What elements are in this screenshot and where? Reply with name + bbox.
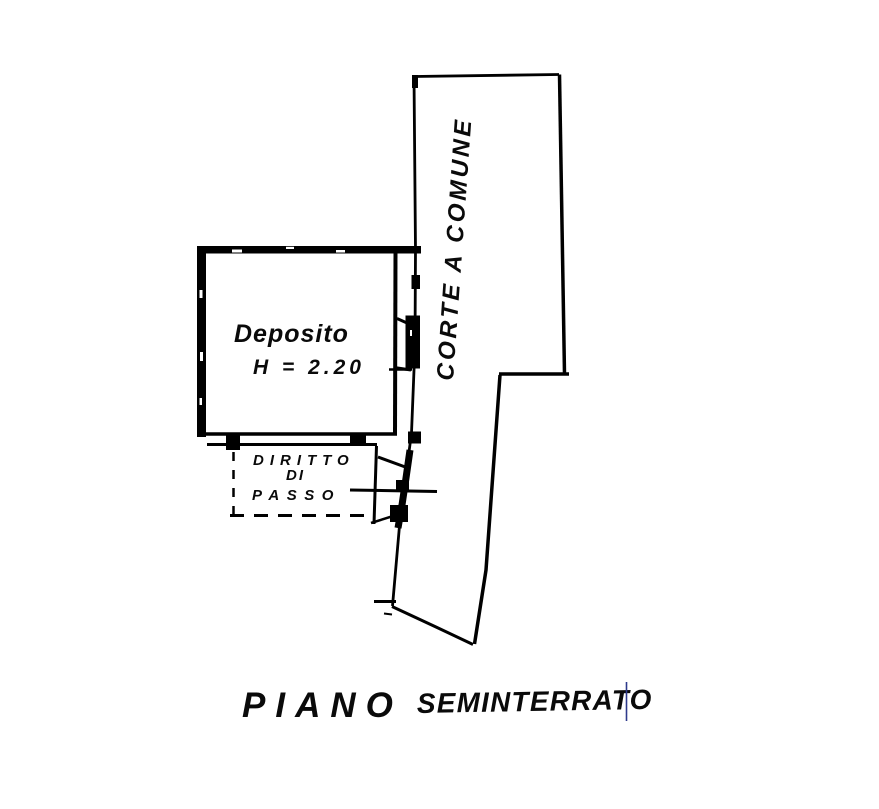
svg-text:Deposito: Deposito: [234, 320, 349, 348]
svg-text:PASSO: PASSO: [252, 487, 341, 504]
svg-text:SEMINTERRATO: SEMINTERRATO: [417, 684, 653, 719]
svg-text:H = 2.20: H = 2.20: [253, 356, 365, 379]
svg-text:CORTE A COMUNE: CORTE A COMUNE: [432, 116, 477, 381]
svg-text:PIANO: PIANO: [242, 686, 403, 725]
svg-text:DI: DI: [286, 467, 305, 484]
